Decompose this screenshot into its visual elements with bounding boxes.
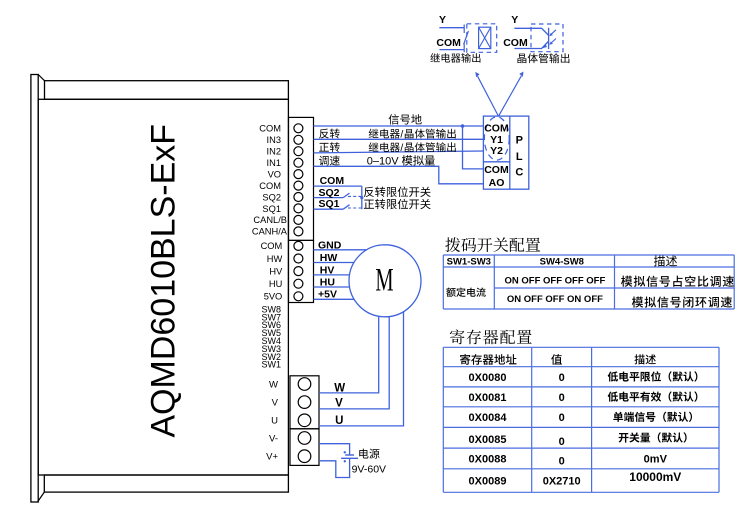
svg-text:V: V: [272, 398, 279, 409]
svg-text:GND: GND: [318, 239, 342, 251]
svg-text:AQMD6010BLS-ExF: AQMD6010BLS-ExF: [145, 124, 183, 438]
svg-text:COM: COM: [436, 37, 461, 49]
svg-text:0X0089: 0X0089: [469, 476, 507, 488]
svg-text:0: 0: [559, 412, 565, 424]
svg-text:HV: HV: [269, 266, 283, 276]
svg-text:COM: COM: [503, 37, 528, 49]
svg-text:HW: HW: [267, 254, 283, 264]
svg-text:0X0081: 0X0081: [469, 392, 507, 404]
svg-text:HW: HW: [320, 252, 338, 264]
svg-text:0X0085: 0X0085: [469, 434, 507, 446]
svg-text:/: /: [400, 142, 403, 154]
svg-text:IN2: IN2: [267, 147, 281, 157]
svg-text:Y2: Y2: [490, 145, 503, 157]
svg-text:W: W: [334, 382, 345, 394]
svg-text:V: V: [335, 398, 343, 410]
svg-text:0X2710: 0X2710: [543, 476, 581, 488]
svg-text:SW1: SW1: [261, 360, 281, 370]
svg-text:COM: COM: [261, 241, 283, 251]
svg-text:SW4-SW8: SW4-SW8: [540, 256, 584, 267]
svg-text:CANH/A: CANH/A: [252, 227, 288, 237]
svg-text:+5V: +5V: [318, 289, 337, 301]
svg-text:COM: COM: [484, 123, 509, 135]
svg-text:/: /: [400, 129, 403, 141]
svg-text:0X0080: 0X0080: [469, 372, 507, 384]
svg-text:U: U: [271, 416, 278, 427]
svg-text:M: M: [375, 262, 393, 298]
svg-text:HU: HU: [320, 276, 335, 288]
svg-text:CANL/B: CANL/B: [253, 215, 287, 225]
svg-text:0–10V: 0–10V: [367, 156, 399, 168]
svg-text:COM: COM: [259, 181, 281, 191]
svg-text:9V-60V: 9V-60V: [352, 463, 386, 475]
svg-text:SQ1: SQ1: [319, 198, 340, 210]
svg-text:0: 0: [559, 372, 565, 384]
svg-text:0: 0: [559, 455, 565, 467]
svg-text:W: W: [269, 379, 278, 390]
svg-text:COM: COM: [320, 175, 345, 187]
svg-text:SQ2: SQ2: [319, 187, 340, 199]
svg-text:0: 0: [559, 392, 565, 404]
svg-text:V+: V+: [266, 452, 278, 463]
svg-text:Y: Y: [511, 14, 518, 26]
svg-text:L: L: [516, 151, 523, 163]
svg-text:V-: V-: [269, 433, 278, 444]
svg-text:0: 0: [559, 436, 565, 448]
svg-text:0mV: 0mV: [644, 454, 668, 466]
svg-text:VO: VO: [268, 169, 281, 179]
svg-text:U: U: [335, 415, 343, 427]
svg-text:Y: Y: [439, 14, 446, 26]
svg-text:0X0088: 0X0088: [469, 454, 507, 466]
svg-text:HU: HU: [269, 279, 282, 289]
svg-text:Y1: Y1: [490, 134, 503, 146]
svg-text:SW1-SW3: SW1-SW3: [447, 256, 491, 267]
svg-text:ON OFF OFF OFF OFF: ON OFF OFF OFF OFF: [505, 275, 606, 286]
svg-text:AO: AO: [489, 177, 505, 189]
svg-text:5VO: 5VO: [264, 292, 283, 302]
svg-text:IN1: IN1: [267, 158, 281, 168]
svg-text:10000mV: 10000mV: [629, 470, 681, 484]
svg-text:SQ2: SQ2: [262, 192, 281, 202]
svg-text:HV: HV: [320, 264, 335, 276]
svg-text:P: P: [516, 134, 523, 146]
svg-text:ON OFF OFF ON OFF: ON OFF OFF ON OFF: [507, 294, 603, 305]
svg-text:COM: COM: [259, 124, 281, 134]
svg-text:0X0084: 0X0084: [469, 412, 508, 424]
svg-text:SQ1: SQ1: [262, 204, 281, 214]
svg-text:C: C: [515, 167, 523, 179]
svg-text:IN3: IN3: [267, 135, 281, 145]
svg-text:COM: COM: [484, 164, 509, 176]
